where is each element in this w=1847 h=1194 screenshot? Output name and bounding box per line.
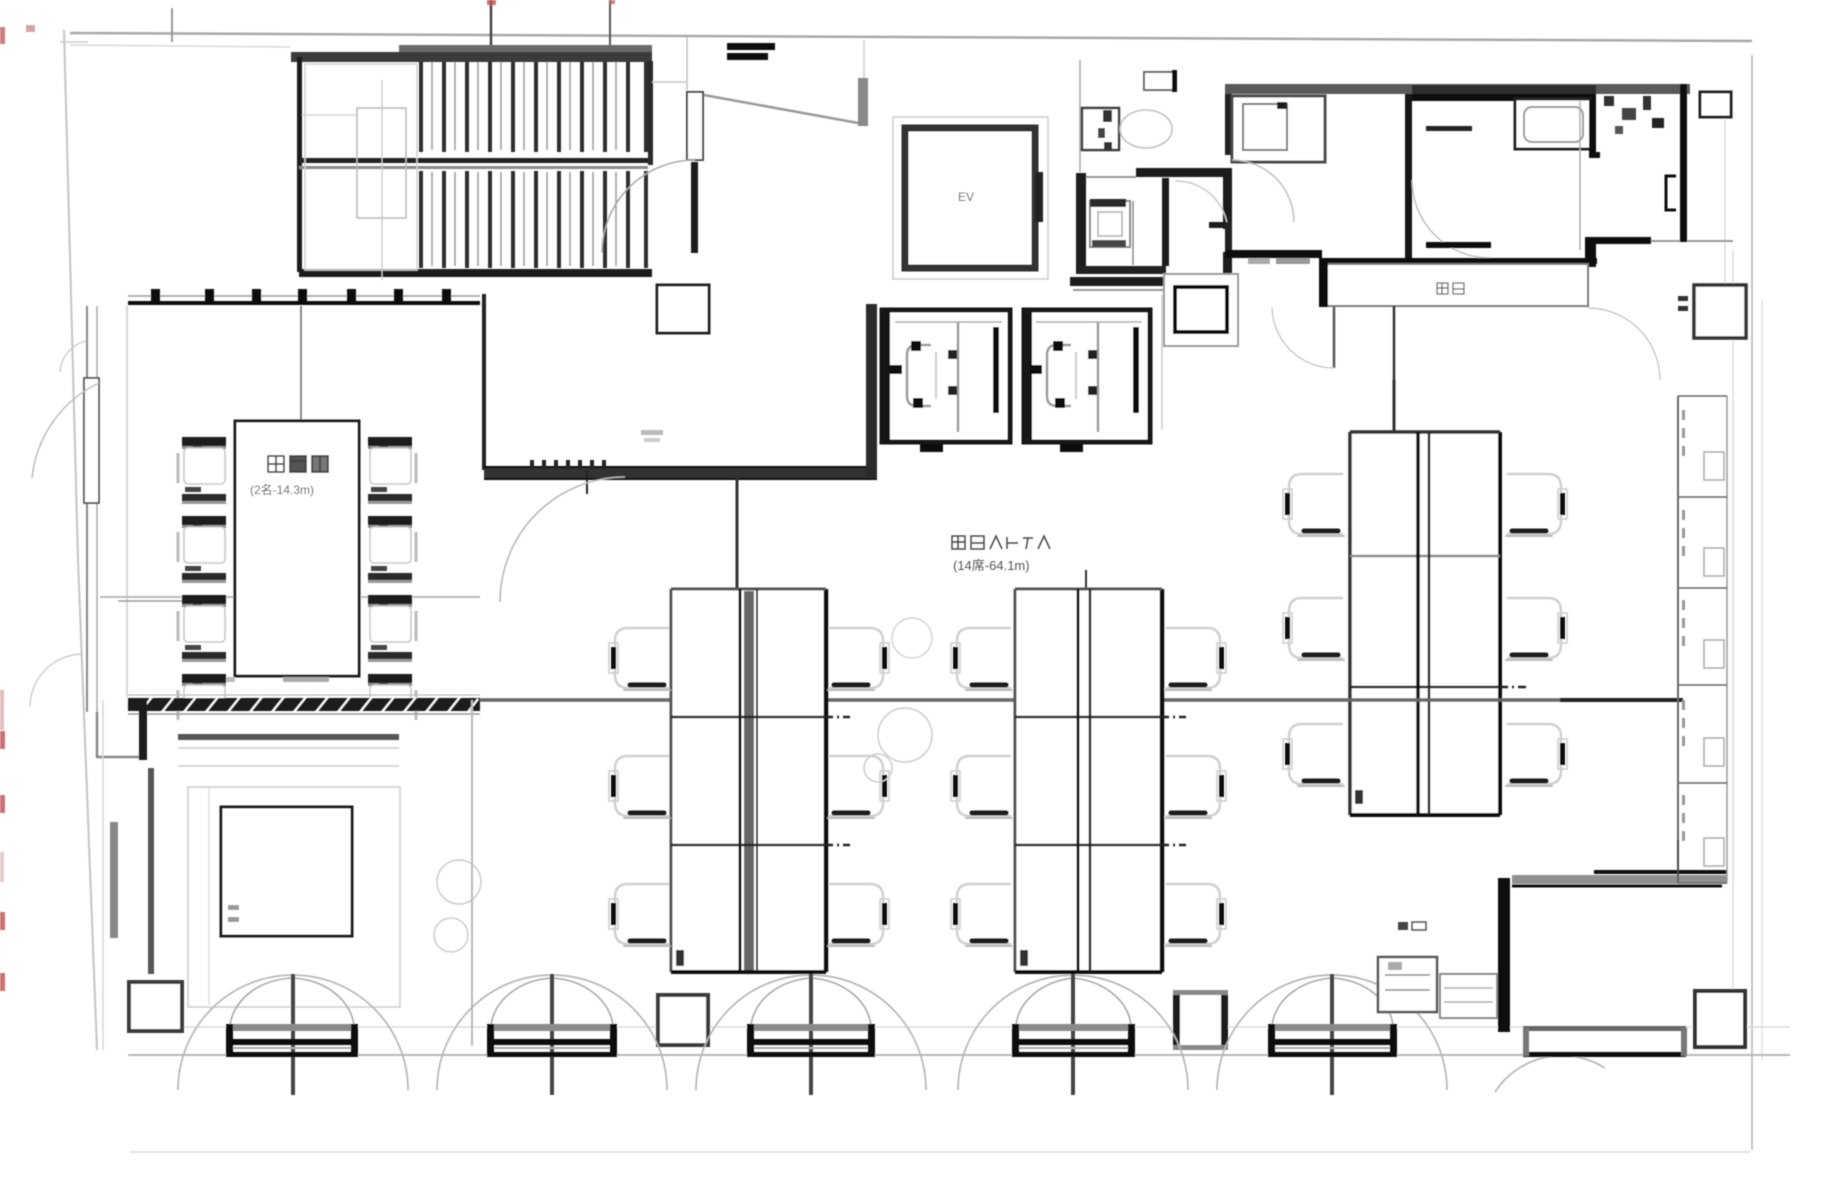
svg-text:EV: EV [958,190,974,204]
svg-text:(2名-14.3m): (2名-14.3m) [250,482,314,497]
svg-text:(14席-64.1m): (14席-64.1m) [953,558,1030,573]
